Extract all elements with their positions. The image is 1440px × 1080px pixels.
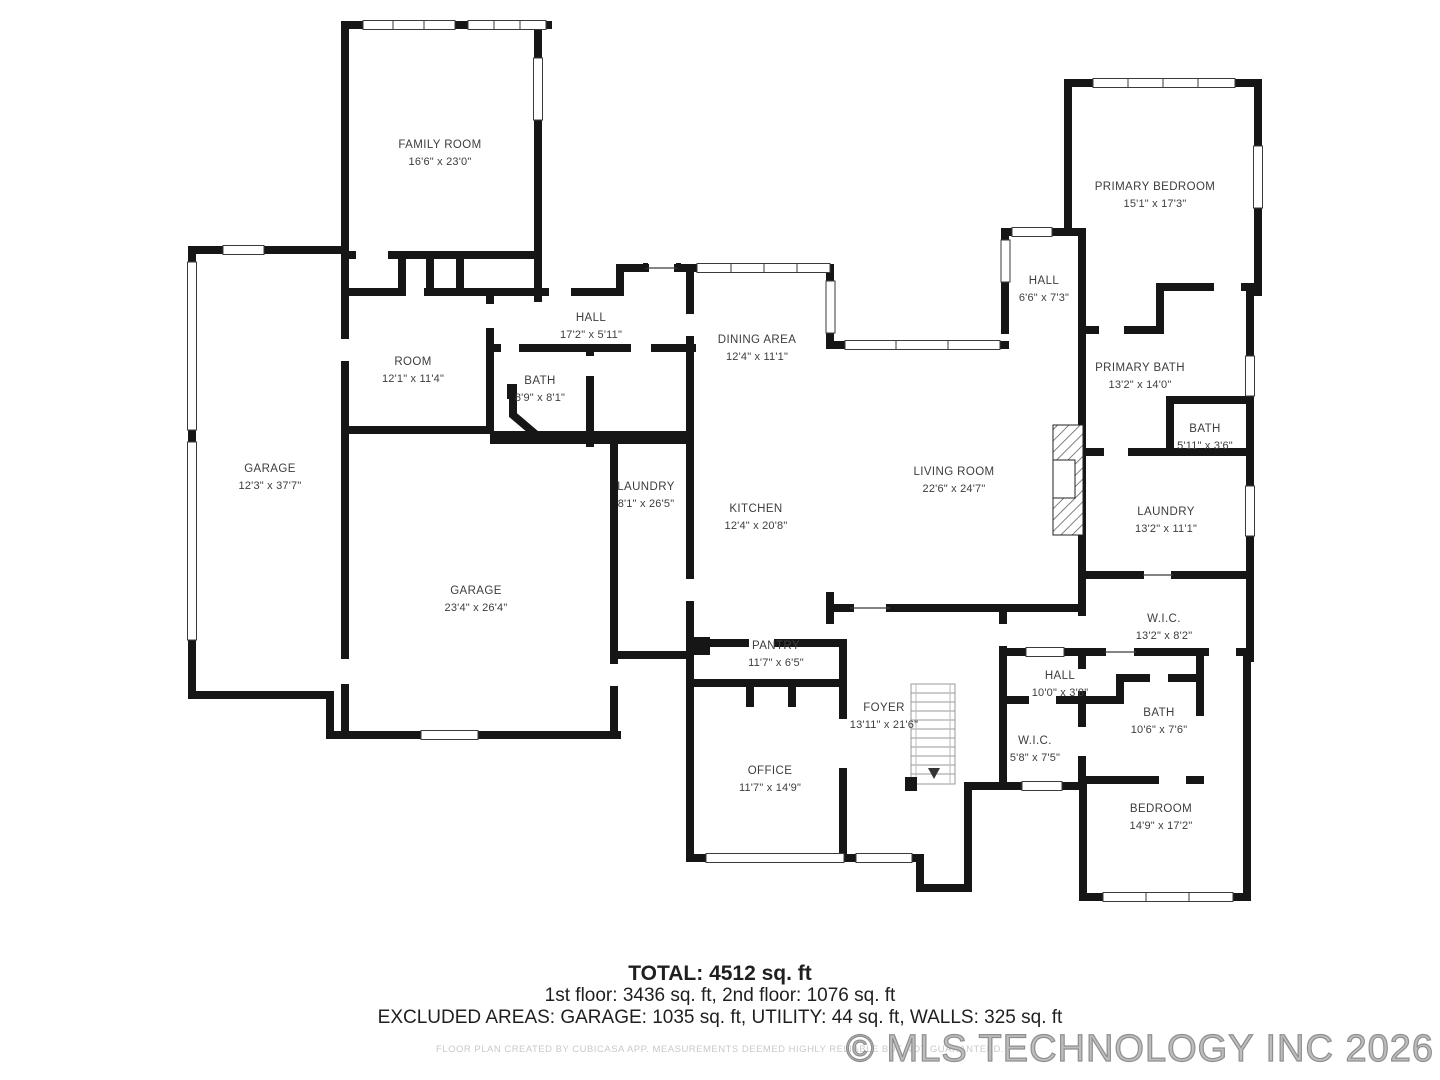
room-label-wic-1: W.I.C.13'2" x 8'2" [1136, 611, 1193, 645]
floor-plan-page: { "rooms": [ {"name": "FAMILY ROOM", "di… [0, 0, 1440, 1080]
room-label-wic-2: W.I.C.5'8" x 7'5" [1010, 733, 1060, 767]
room-label-kitchen: KITCHEN12'4" x 20'8" [725, 501, 788, 535]
room-label-bath-1: BATH8'9" x 8'1" [515, 373, 565, 407]
room-label-primary-bedroom: PRIMARY BEDROOM15'1" x 17'3" [1095, 179, 1216, 213]
room-label-laundry-2: LAUNDRY13'2" x 11'1" [1135, 504, 1197, 538]
total-area-text: TOTAL: 4512 sq. ft [0, 962, 1440, 985]
excluded-areas-text: EXCLUDED AREAS: GARAGE: 1035 sq. ft, UTI… [0, 1007, 1440, 1029]
wall-thick-band [490, 431, 690, 444]
room-label-bath-3: BATH10'6" x 7'6" [1131, 705, 1188, 739]
room-label-family-room: FAMILY ROOM16'6" x 23'0" [398, 137, 481, 171]
watermark-text: © MLS TECHNOLOGY INC 2026 [846, 1028, 1434, 1071]
windows [363, 21, 1263, 902]
fireplace [1053, 425, 1083, 535]
room-label-office: OFFICE11'7" x 14'9" [739, 763, 801, 797]
floor-plan-drawing [0, 0, 1440, 1080]
openings [645, 268, 1175, 652]
room-label-garage-1: GARAGE12'3" x 37'7" [239, 461, 302, 495]
room-label-laundry-1: LAUNDRY8'1" x 26'5" [617, 479, 675, 513]
room-label-bath-2: BATH5'11" x 3'6" [1177, 421, 1233, 455]
room-label-living-room: LIVING ROOM22'6" x 24'7" [913, 464, 994, 498]
room-label-primary-bath: PRIMARY BATH13'2" x 14'0" [1095, 360, 1185, 394]
floor-areas-text: 1st floor: 3436 sq. ft, 2nd floor: 1076 … [0, 985, 1440, 1007]
room-label-hall-2: HALL6'6" x 7'3" [1019, 273, 1069, 307]
room-label-room: ROOM12'1" x 11'4" [382, 354, 444, 388]
room-label-dining-area: DINING AREA12'4" x 11'1" [718, 332, 797, 366]
room-label-hall-3: HALL10'0" x 3'8" [1032, 668, 1089, 702]
garage-doors [188, 246, 479, 740]
walls [192, 25, 1258, 897]
area-summary: TOTAL: 4512 sq. ft 1st floor: 3436 sq. f… [0, 962, 1440, 1029]
room-label-hall-1: HALL17'2" x 5'11" [560, 310, 622, 344]
room-label-garage-2: GARAGE23'4" x 26'4" [445, 583, 508, 617]
room-label-pantry: PANTRY11'7" x 6'5" [748, 638, 804, 672]
room-label-foyer: FOYER13'11" x 21'6" [850, 700, 918, 734]
room-label-bedroom: BEDROOM14'9" x 17'2" [1130, 801, 1193, 835]
wall-corner-pantry [686, 637, 710, 655]
